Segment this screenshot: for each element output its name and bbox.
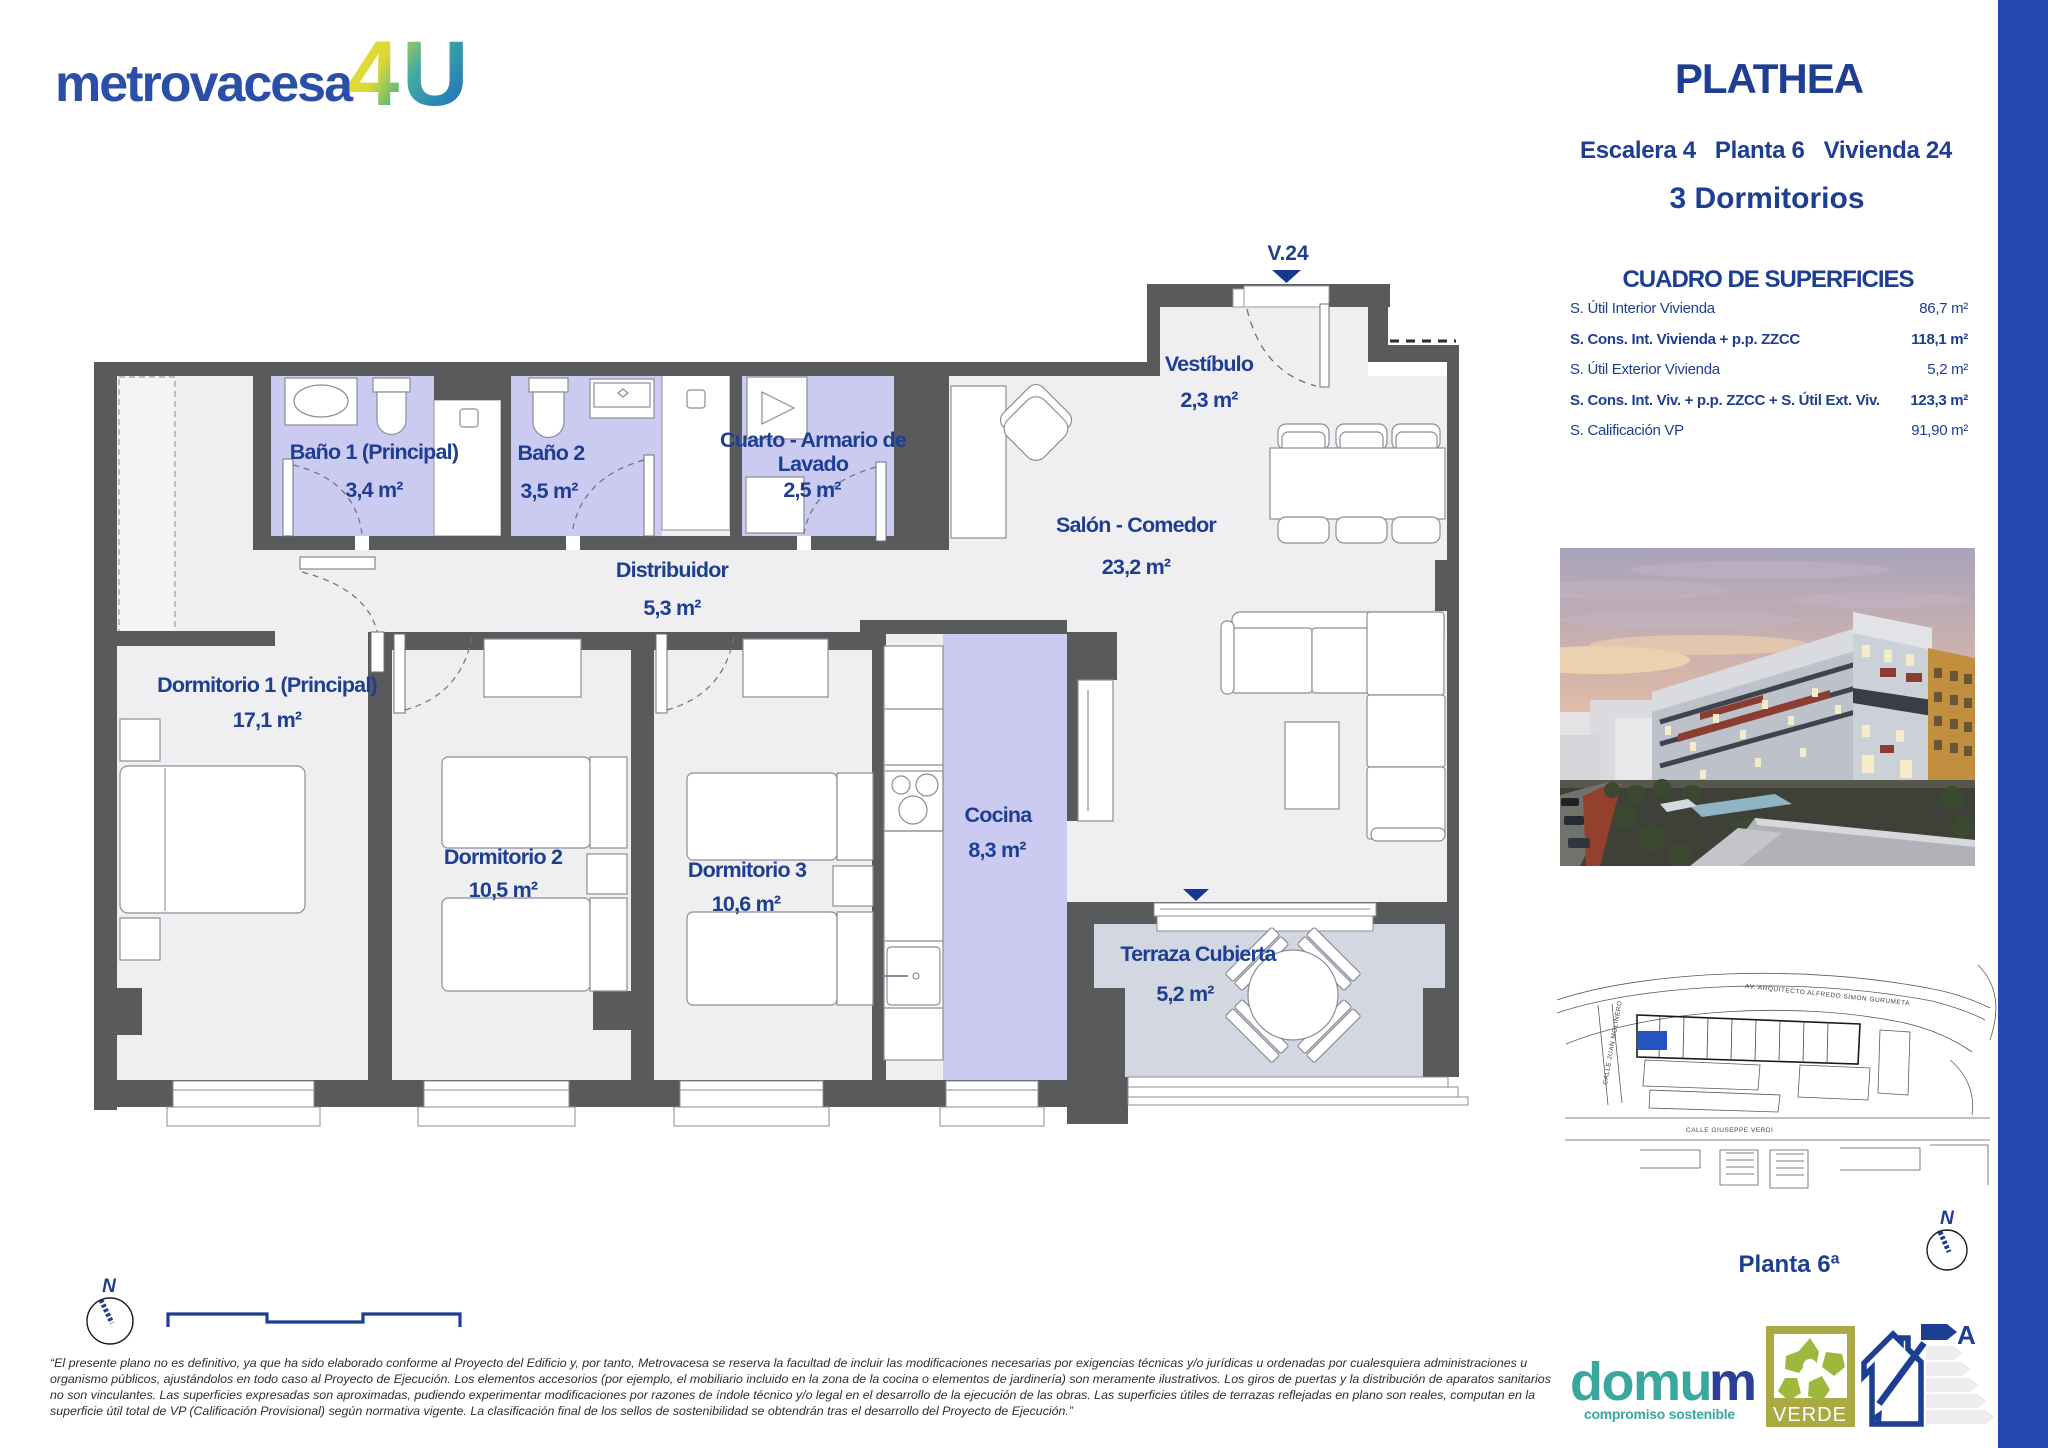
svg-text:8,3 m²: 8,3 m² <box>968 838 1026 862</box>
svg-text:“El presente plano no es defin: “El presente plano no es definitivo, ya … <box>50 1356 1527 1370</box>
svg-text:Escalera 4 Planta 6 Vivien: Escalera 4 Planta 6 Vivienda 24 <box>1580 137 1953 164</box>
svg-text:17,1 m²: 17,1 m² <box>233 708 302 732</box>
svg-text:S. Cons. Int. Vivienda + p.p.: S. Cons. Int. Vivienda + p.p. ZZCC <box>1570 331 1800 348</box>
svg-text:10,5 m²: 10,5 m² <box>469 878 538 902</box>
svg-text:3,5 m²: 3,5 m² <box>520 479 578 503</box>
svg-text:23,2 m²: 23,2 m² <box>1102 555 1171 579</box>
svg-text:N: N <box>1940 1208 1955 1229</box>
svg-text:PLATHEA: PLATHEA <box>1675 55 1864 102</box>
svg-text:Cocina: Cocina <box>965 803 1034 827</box>
svg-text:S. Útil Interior Vivienda: S. Útil Interior Vivienda <box>1570 300 1716 317</box>
svg-text:Dormitorio 3: Dormitorio 3 <box>688 858 807 882</box>
svg-text:5,2 m²: 5,2 m² <box>1927 361 1968 378</box>
svg-text:N: N <box>102 1276 117 1297</box>
svg-text:3 Dormitorios: 3 Dormitorios <box>1669 182 1864 215</box>
svg-text:U: U <box>402 23 468 125</box>
svg-text:Vestíbulo: Vestíbulo <box>1165 352 1254 376</box>
svg-text:Baño 2: Baño 2 <box>518 441 586 465</box>
svg-text:AV. ARQUITECTO ALFREDO SIMON G: AV. ARQUITECTO ALFREDO SIMON GURUMETA <box>1745 983 1911 1007</box>
svg-text:2,3 m²: 2,3 m² <box>1180 388 1238 412</box>
svg-text:m: m <box>1709 1352 1756 1412</box>
svg-text:Dormitorio 1 (Principal): Dormitorio 1 (Principal) <box>157 673 377 697</box>
svg-text:CALLE GIUSEPPE VERDI: CALLE GIUSEPPE VERDI <box>1686 1127 1773 1134</box>
svg-text:Planta 6ª: Planta 6ª <box>1739 1251 1840 1278</box>
svg-text:Baño 1 (Principal): Baño 1 (Principal) <box>290 440 459 464</box>
svg-text:91,90 m²: 91,90 m² <box>1911 422 1968 439</box>
svg-text:S. Calificación VP: S. Calificación VP <box>1570 422 1684 439</box>
svg-text:Salón - Comedor: Salón - Comedor <box>1056 513 1217 537</box>
svg-text:VERDE: VERDE <box>1773 1404 1847 1426</box>
svg-text:Lavado: Lavado <box>778 452 849 476</box>
svg-text:118,1 m²: 118,1 m² <box>1911 331 1968 348</box>
svg-text:superficie útil total de VP (C: superficie útil total de VP (Calificació… <box>50 1404 1074 1418</box>
svg-text:Dormitorio 2: Dormitorio 2 <box>444 845 563 869</box>
svg-text:123,3 m²: 123,3 m² <box>1910 392 1968 409</box>
svg-text:A: A <box>1957 1320 1976 1350</box>
svg-text:domu: domu <box>1570 1352 1711 1412</box>
svg-text:compromiso sostenible: compromiso sostenible <box>1584 1406 1735 1422</box>
svg-text:86,7 m²: 86,7 m² <box>1919 300 1968 317</box>
svg-text:4: 4 <box>348 23 399 125</box>
svg-text:3,4 m²: 3,4 m² <box>345 478 403 502</box>
svg-text:2,5 m²: 2,5 m² <box>783 478 841 502</box>
svg-text:no son vinculantes. Las superf: no son vinculantes. Las superficies expr… <box>50 1388 1535 1402</box>
svg-text:5,3 m²: 5,3 m² <box>643 596 701 620</box>
svg-text:CUADRO DE SUPERFICIES: CUADRO DE SUPERFICIES <box>1622 266 1914 293</box>
svg-text:S. Cons. Int. Viv. + p.p. ZZCC: S. Cons. Int. Viv. + p.p. ZZCC + S. Útil… <box>1570 391 1880 409</box>
svg-text:Terraza Cubierta: Terraza Cubierta <box>1120 942 1277 966</box>
svg-text:Cuarto - Armario de: Cuarto - Armario de <box>720 428 907 452</box>
svg-text:10,6 m²: 10,6 m² <box>712 892 781 916</box>
svg-text:V.24: V.24 <box>1267 242 1309 265</box>
svg-text:Distribuidor: Distribuidor <box>616 558 730 582</box>
svg-text:5,2 m²: 5,2 m² <box>1156 982 1214 1006</box>
svg-text:metrovacesa: metrovacesa <box>55 55 354 113</box>
svg-text:S. Útil Exterior Vivienda: S. Útil Exterior Vivienda <box>1570 361 1721 378</box>
svg-text:organismo públicos, ajustándol: organismo públicos, ajustándolos en todo… <box>50 1372 1551 1386</box>
